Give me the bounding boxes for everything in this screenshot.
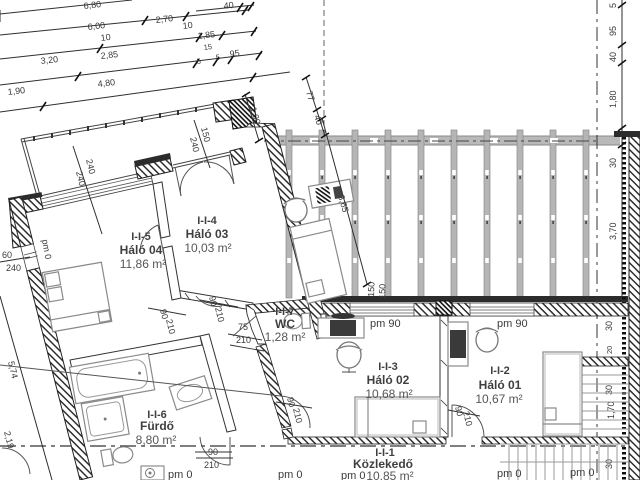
- svg-text:I-I-4: I-I-4: [197, 215, 217, 227]
- svg-text:I-I-5: I-I-5: [131, 231, 151, 243]
- svg-text:30: 30: [608, 158, 618, 168]
- svg-text:Háló 01: Háló 01: [479, 378, 522, 392]
- svg-text:15: 15: [203, 42, 212, 52]
- svg-text:240: 240: [6, 263, 21, 273]
- svg-text:95: 95: [608, 26, 618, 36]
- svg-text:I-I-2: I-I-2: [490, 365, 510, 377]
- svg-text:6,00: 6,00: [87, 20, 106, 32]
- svg-text:pm 0: pm 0: [570, 467, 594, 479]
- svg-text:I-I-3: I-I-3: [378, 361, 398, 373]
- svg-text:10,68 m²: 10,68 m²: [365, 387, 412, 401]
- svg-text:10: 10: [100, 32, 111, 43]
- svg-text:150: 150: [366, 282, 377, 297]
- svg-text:pm 0: pm 0: [168, 469, 192, 480]
- svg-text:2,70: 2,70: [155, 13, 174, 25]
- svg-text:1,80: 1,80: [608, 90, 618, 108]
- svg-text:150: 150: [377, 284, 388, 299]
- svg-text:1,70: 1,70: [606, 401, 616, 419]
- svg-text:10,03 m²: 10,03 m²: [184, 241, 231, 255]
- svg-text:5: 5: [608, 3, 618, 8]
- svg-text:Fürdő: Fürdő: [140, 419, 174, 433]
- svg-text:30: 30: [604, 321, 614, 331]
- svg-text:60: 60: [2, 250, 12, 260]
- svg-text:3,70: 3,70: [608, 222, 618, 240]
- svg-text:2,85: 2,85: [100, 49, 119, 61]
- svg-text:Háló 03: Háló 03: [186, 227, 229, 241]
- svg-text:1,85: 1,85: [197, 29, 216, 41]
- svg-text:pm 90: pm 90: [497, 318, 528, 330]
- svg-text:1,28 m²: 1,28 m²: [265, 330, 306, 344]
- svg-text:4,80: 4,80: [97, 77, 116, 89]
- svg-text:8,80 m²: 8,80 m²: [136, 433, 177, 447]
- svg-text:11,86 m²: 11,86 m²: [120, 257, 166, 271]
- svg-text:Háló 04: Háló 04: [120, 243, 163, 257]
- svg-text:pm 0: pm 0: [278, 469, 302, 480]
- svg-text:pm 0: pm 0: [341, 470, 365, 480]
- svg-text:30: 30: [604, 459, 614, 469]
- svg-text:pm 90: pm 90: [370, 318, 401, 330]
- svg-text:pm 0: pm 0: [497, 468, 521, 480]
- svg-text:WC: WC: [275, 317, 295, 331]
- svg-text:40: 40: [223, 0, 234, 11]
- svg-text:40: 40: [608, 52, 618, 62]
- svg-text:1,90: 1,90: [7, 85, 26, 97]
- svg-text:10: 10: [182, 20, 193, 31]
- svg-text:10,85 m²: 10,85 m²: [366, 469, 413, 480]
- svg-text:3,20: 3,20: [40, 54, 59, 66]
- svg-text:20: 20: [605, 346, 614, 354]
- svg-text:Háló 02: Háló 02: [367, 373, 410, 387]
- svg-text:95: 95: [229, 48, 240, 59]
- svg-text:10,67 m²: 10,67 m²: [475, 392, 522, 406]
- svg-text:75: 75: [238, 322, 248, 332]
- svg-text:210: 210: [204, 460, 219, 470]
